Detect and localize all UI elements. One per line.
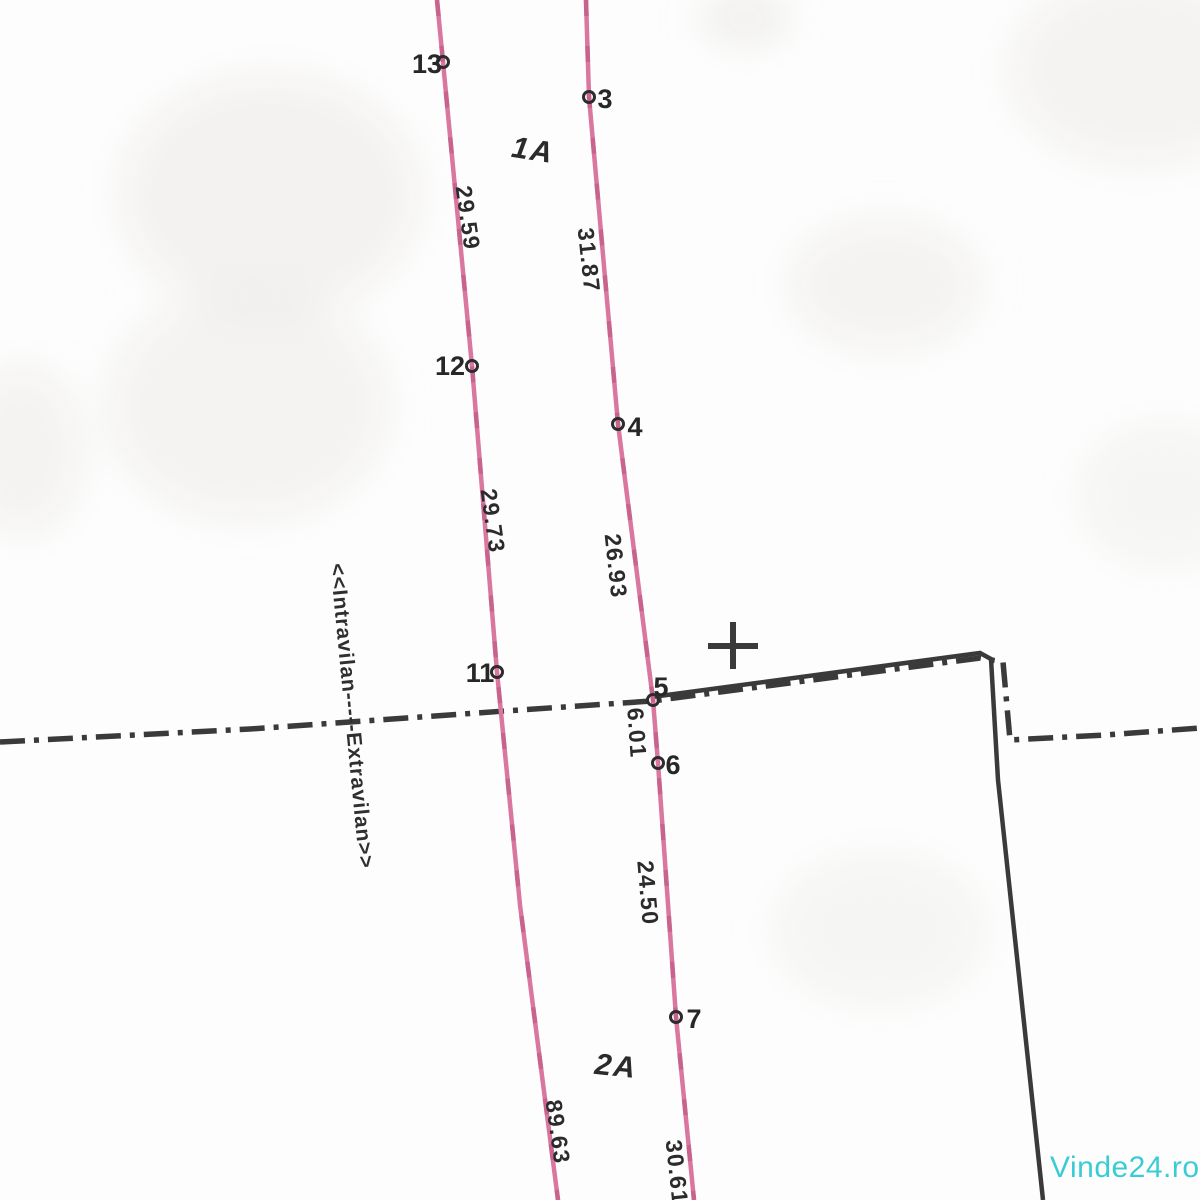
labels-layer: 1331241156729.5931.8729.7326.936.0124.50… — [325, 49, 1199, 1200]
measurement-label-24.50: 24.50 — [632, 859, 664, 926]
grid-cross-icon — [708, 622, 758, 669]
zone-boundary-label: <<Intravilan-----Extravilan>> — [325, 562, 377, 870]
survey-point-label-5: 5 — [653, 672, 668, 702]
survey-point-label-13: 13 — [412, 49, 442, 79]
survey-point-label-11: 11 — [466, 658, 495, 688]
cadastral-plan-canvas: 1331241156729.5931.8729.7326.936.0124.50… — [0, 0, 1200, 1200]
watermark-text: Vinde24.ro — [1050, 1151, 1200, 1184]
cadastral-plan-drawing: 1331241156729.5931.8729.7326.936.0124.50… — [0, 0, 1200, 1200]
measurement-label-6.01: 6.01 — [622, 707, 651, 759]
measurement-label-29.59: 29.59 — [451, 184, 486, 252]
measurement-label-26.93: 26.93 — [600, 532, 633, 599]
measurement-label-29.73: 29.73 — [476, 487, 511, 555]
survey-point-label-7: 7 — [686, 1004, 701, 1034]
measurement-label-30.61: 30.61 — [661, 1138, 694, 1200]
survey-point-label-12: 12 — [435, 351, 465, 381]
parcel-line-left — [437, 0, 558, 1200]
parcel-line-right-dark-dashes — [586, 0, 694, 1200]
survey-point-label-4: 4 — [627, 412, 642, 442]
measurement-label-89.63: 89.63 — [541, 1098, 576, 1166]
admin-boundary-dashdot-line — [0, 658, 1200, 742]
measurement-label-31.87: 31.87 — [573, 226, 606, 293]
survey-point-label-3: 3 — [597, 84, 612, 114]
survey-point-label-6: 6 — [665, 750, 680, 780]
parcel-label-2A: 2A — [592, 1048, 639, 1085]
parcel-label-1A: 1A — [509, 131, 556, 170]
scan-shading-blobs — [0, 0, 1200, 1005]
